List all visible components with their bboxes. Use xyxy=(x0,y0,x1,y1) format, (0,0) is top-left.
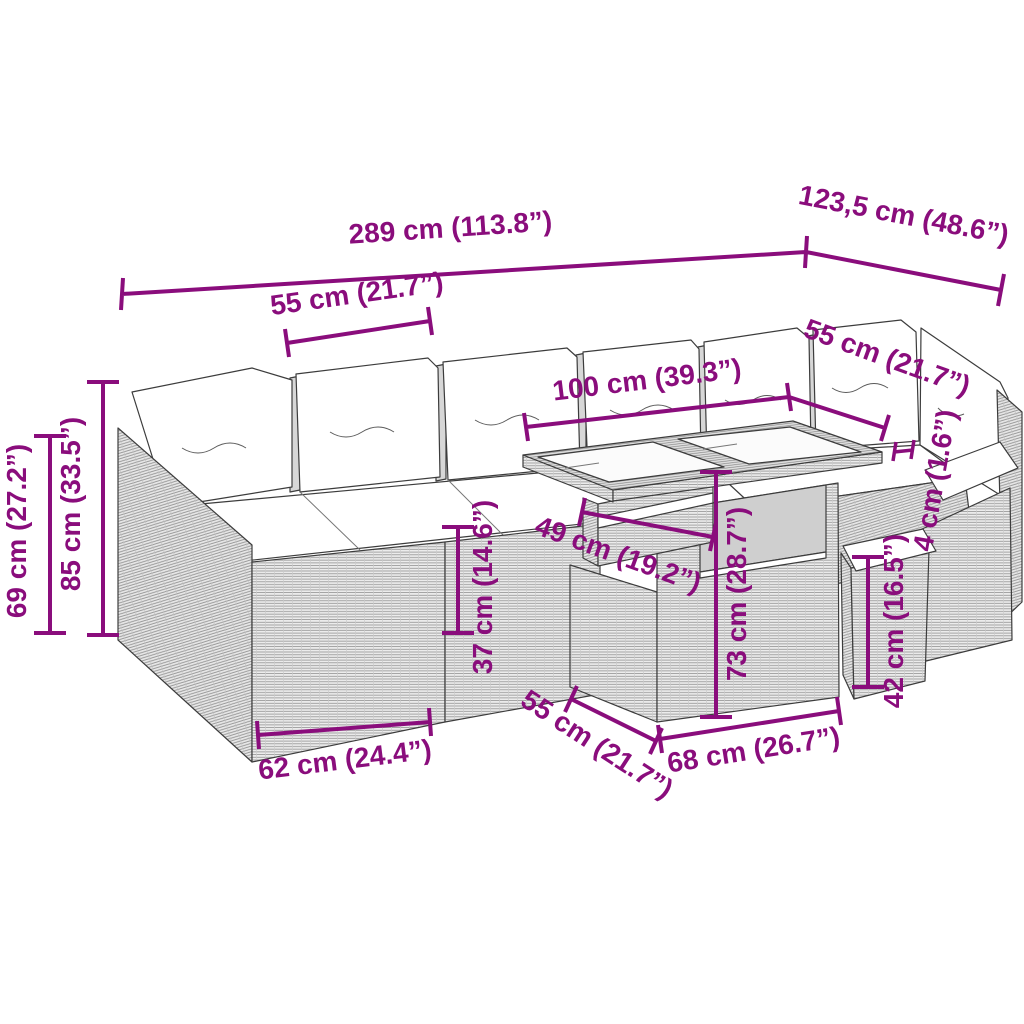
dim-line-overall-width xyxy=(121,236,807,310)
furniture-dimension-diagram: 289 cm (113.8”) 123,5 cm (48.6”) 55 cm (… xyxy=(0,0,1024,1024)
dim-line-overall-depth xyxy=(806,252,1004,306)
dim-label-stool-height: 42 cm (16.5”) xyxy=(878,534,909,708)
dim-label-table-base-width: 68 cm (26.7”) xyxy=(665,721,842,779)
dim-label-table-height: 73 cm (28.7”) xyxy=(721,507,752,681)
table-base-left-face xyxy=(570,565,657,722)
dim-label-module-width-top: 55 cm (21.7”) xyxy=(268,266,445,321)
dim-label-seat-height: 37 cm (14.6”) xyxy=(467,500,498,674)
diagram-canvas: 289 cm (113.8”) 123,5 cm (48.6”) 55 cm (… xyxy=(0,0,1024,1024)
dim-label-back-height: 69 cm (27.2”) xyxy=(1,444,32,618)
dim-label-overall-width: 289 cm (113.8”) xyxy=(348,205,554,249)
back-cushion xyxy=(296,358,440,492)
dim-line-total-height xyxy=(87,382,119,635)
dim-label-overall-depth: 123,5 cm (48.6”) xyxy=(796,179,1011,250)
dim-label-total-height: 85 cm (33.5”) xyxy=(55,417,86,591)
